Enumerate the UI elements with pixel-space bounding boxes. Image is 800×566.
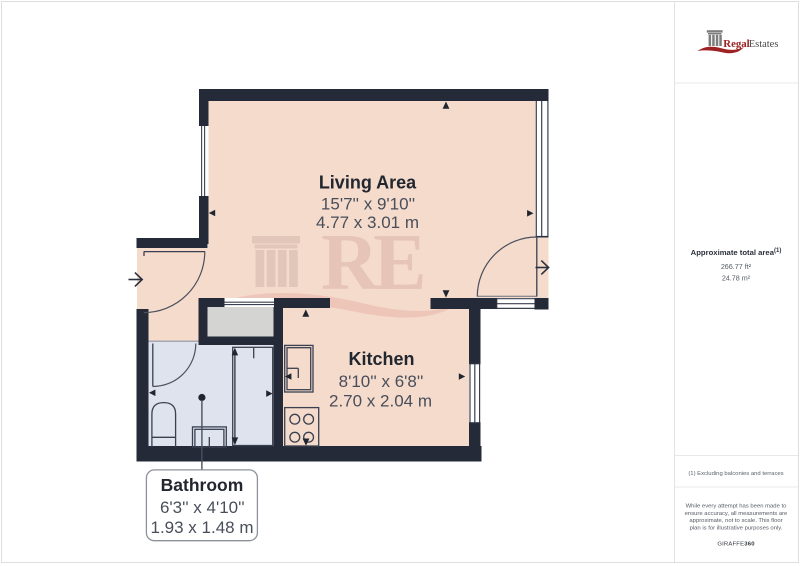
svg-text:Estates: Estates <box>749 39 779 50</box>
svg-text:While every attempt has been m: While every attempt has been made to <box>686 504 788 510</box>
svg-text:Kitchen: Kitchen <box>348 349 414 369</box>
svg-text:4.77 x 3.01 m: 4.77 x 3.01 m <box>316 213 419 232</box>
svg-text:Living Area: Living Area <box>319 173 417 193</box>
svg-text:RE: RE <box>321 219 423 307</box>
svg-text:8'10'' x 6'8'': 8'10'' x 6'8'' <box>339 372 424 391</box>
svg-text:2.70 x 2.04 m: 2.70 x 2.04 m <box>329 392 432 411</box>
svg-text:ensure accuracy, all measureme: ensure accuracy, all measurements are <box>685 511 788 517</box>
svg-text:GIRAFFE360: GIRAFFE360 <box>717 542 755 548</box>
svg-text:approximate, not to scale. Thi: approximate, not to scale. This floor <box>689 518 782 524</box>
svg-text:(1) Excluding balconies and te: (1) Excluding balconies and terraces <box>688 471 783 477</box>
svg-text:1.93 x 1.48 m: 1.93 x 1.48 m <box>150 518 253 537</box>
svg-text:15'7'' x 9'10'': 15'7'' x 9'10'' <box>321 195 415 214</box>
svg-text:plan is for illustrative purpo: plan is for illustrative purposes only. <box>690 525 783 531</box>
svg-text:Approximate total area(1): Approximate total area(1) <box>691 248 782 257</box>
svg-text:24.78 m²: 24.78 m² <box>722 274 751 283</box>
svg-text:Bathroom: Bathroom <box>161 475 244 495</box>
svg-text:Regal: Regal <box>723 38 749 50</box>
svg-text:6'3'' x 4'10'': 6'3'' x 4'10'' <box>160 498 245 517</box>
svg-text:266.77 ft²: 266.77 ft² <box>721 262 752 271</box>
